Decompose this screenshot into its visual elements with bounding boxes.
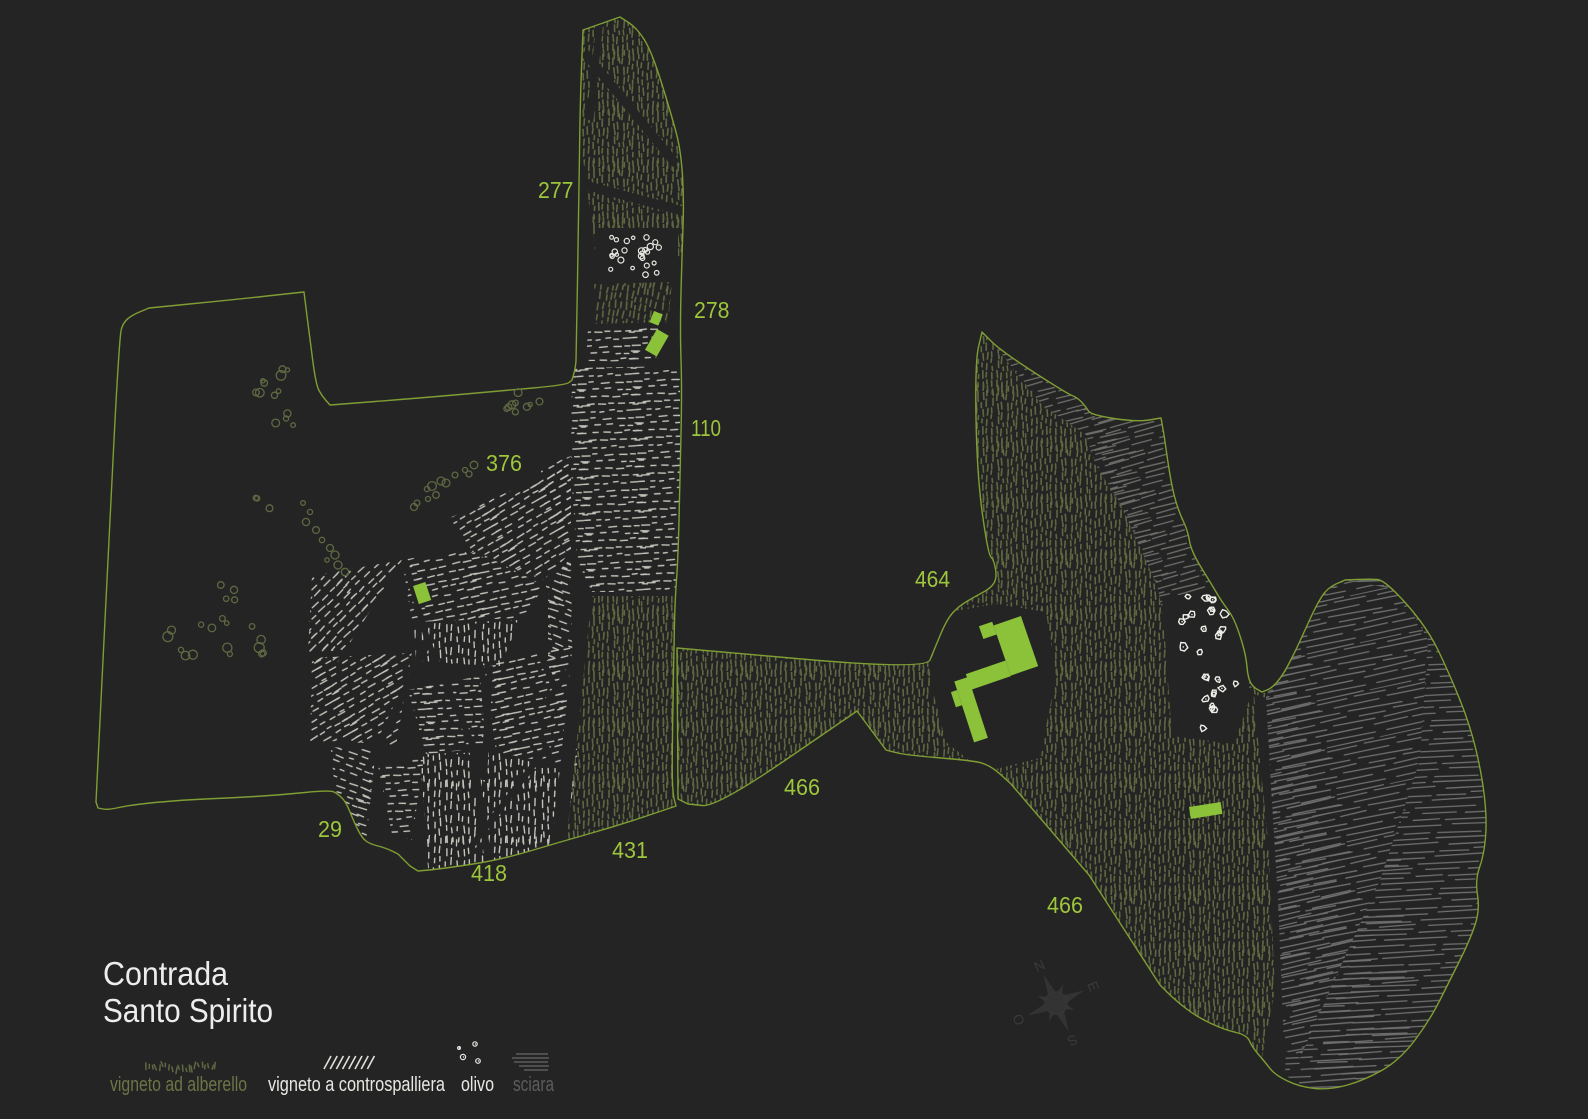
svg-text:vigneto ad alberello: vigneto ad alberello [110,1074,247,1096]
svg-text:Santo Spirito: Santo Spirito [103,992,273,1029]
svg-text:278: 278 [694,297,730,323]
svg-text:418: 418 [471,860,507,886]
svg-text:277: 277 [538,177,574,203]
svg-text:29: 29 [318,816,342,842]
svg-text:vigneto a controspalliera: vigneto a controspalliera [268,1074,446,1096]
svg-text:110: 110 [691,415,721,441]
svg-text:376: 376 [486,450,522,476]
svg-text:Contrada: Contrada [103,955,229,992]
svg-text:466: 466 [784,774,820,800]
svg-text:466: 466 [1047,892,1083,918]
svg-text:464: 464 [915,566,950,592]
svg-text:431: 431 [612,837,648,863]
svg-text:olivo: olivo [461,1074,494,1096]
svg-text:sciara: sciara [513,1074,555,1096]
